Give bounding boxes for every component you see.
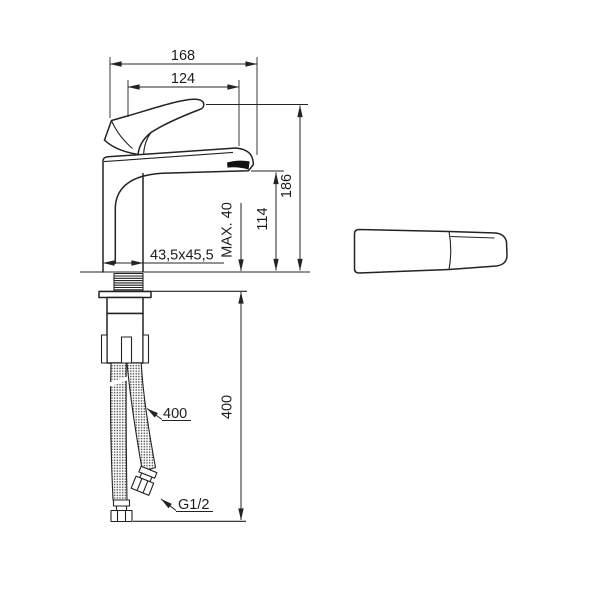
handle-top-view-outline <box>355 230 508 274</box>
lever-back-underside <box>105 140 139 155</box>
hose-fitting-left <box>111 500 132 522</box>
hose-fitting-right <box>131 466 158 495</box>
hose-label-leader <box>147 409 162 420</box>
faucet-technical-drawing-page: 168 124 186 114 MAX. 40 400 43,5x45,5 <box>0 0 600 600</box>
mounting-ear-right <box>143 335 149 363</box>
aerator-outlet <box>227 161 250 170</box>
handle-end-cap-joint <box>449 232 451 270</box>
dimensions: 168 124 186 114 MAX. 40 400 43,5x45,5 <box>103 48 308 520</box>
dim-spout-reach-label: 124 <box>171 71 195 87</box>
hose-label: 400 <box>163 406 187 422</box>
dim-total-height-label: 186 <box>279 174 295 198</box>
front-view: 168 124 186 114 MAX. 40 400 43,5x45,5 <box>80 48 310 522</box>
technical-drawing-canvas: 168 124 186 114 MAX. 40 400 43,5x45,5 <box>0 0 600 600</box>
lever-back-edge <box>112 121 133 149</box>
thread-label-leader <box>161 499 176 511</box>
thread-size-label: G1/2 <box>178 497 209 513</box>
mounting-nut <box>107 298 143 314</box>
lever-handle-profile <box>105 99 204 154</box>
dim-total-width-label: 168 <box>171 48 195 64</box>
side-view-handle <box>355 230 508 274</box>
dim-outlet-height-label: 114 <box>255 207 271 230</box>
supply-hose-right <box>127 363 156 472</box>
mounting-ear-left <box>102 335 108 363</box>
dim-base-section-label: 43,5x45,5 <box>150 248 214 264</box>
spout-top-inner-edge <box>104 152 233 161</box>
mounting-hardware <box>99 292 151 364</box>
dim-deck-thickness-label: MAX. 40 <box>220 202 236 258</box>
threaded-shank <box>114 274 143 292</box>
handle-end-cap-chamfer <box>451 237 495 239</box>
dim-hose-length-label: 400 <box>220 395 236 419</box>
supply-hoses <box>107 363 158 522</box>
mounting-stud-slot <box>122 337 132 363</box>
mounting-washer <box>99 292 151 298</box>
